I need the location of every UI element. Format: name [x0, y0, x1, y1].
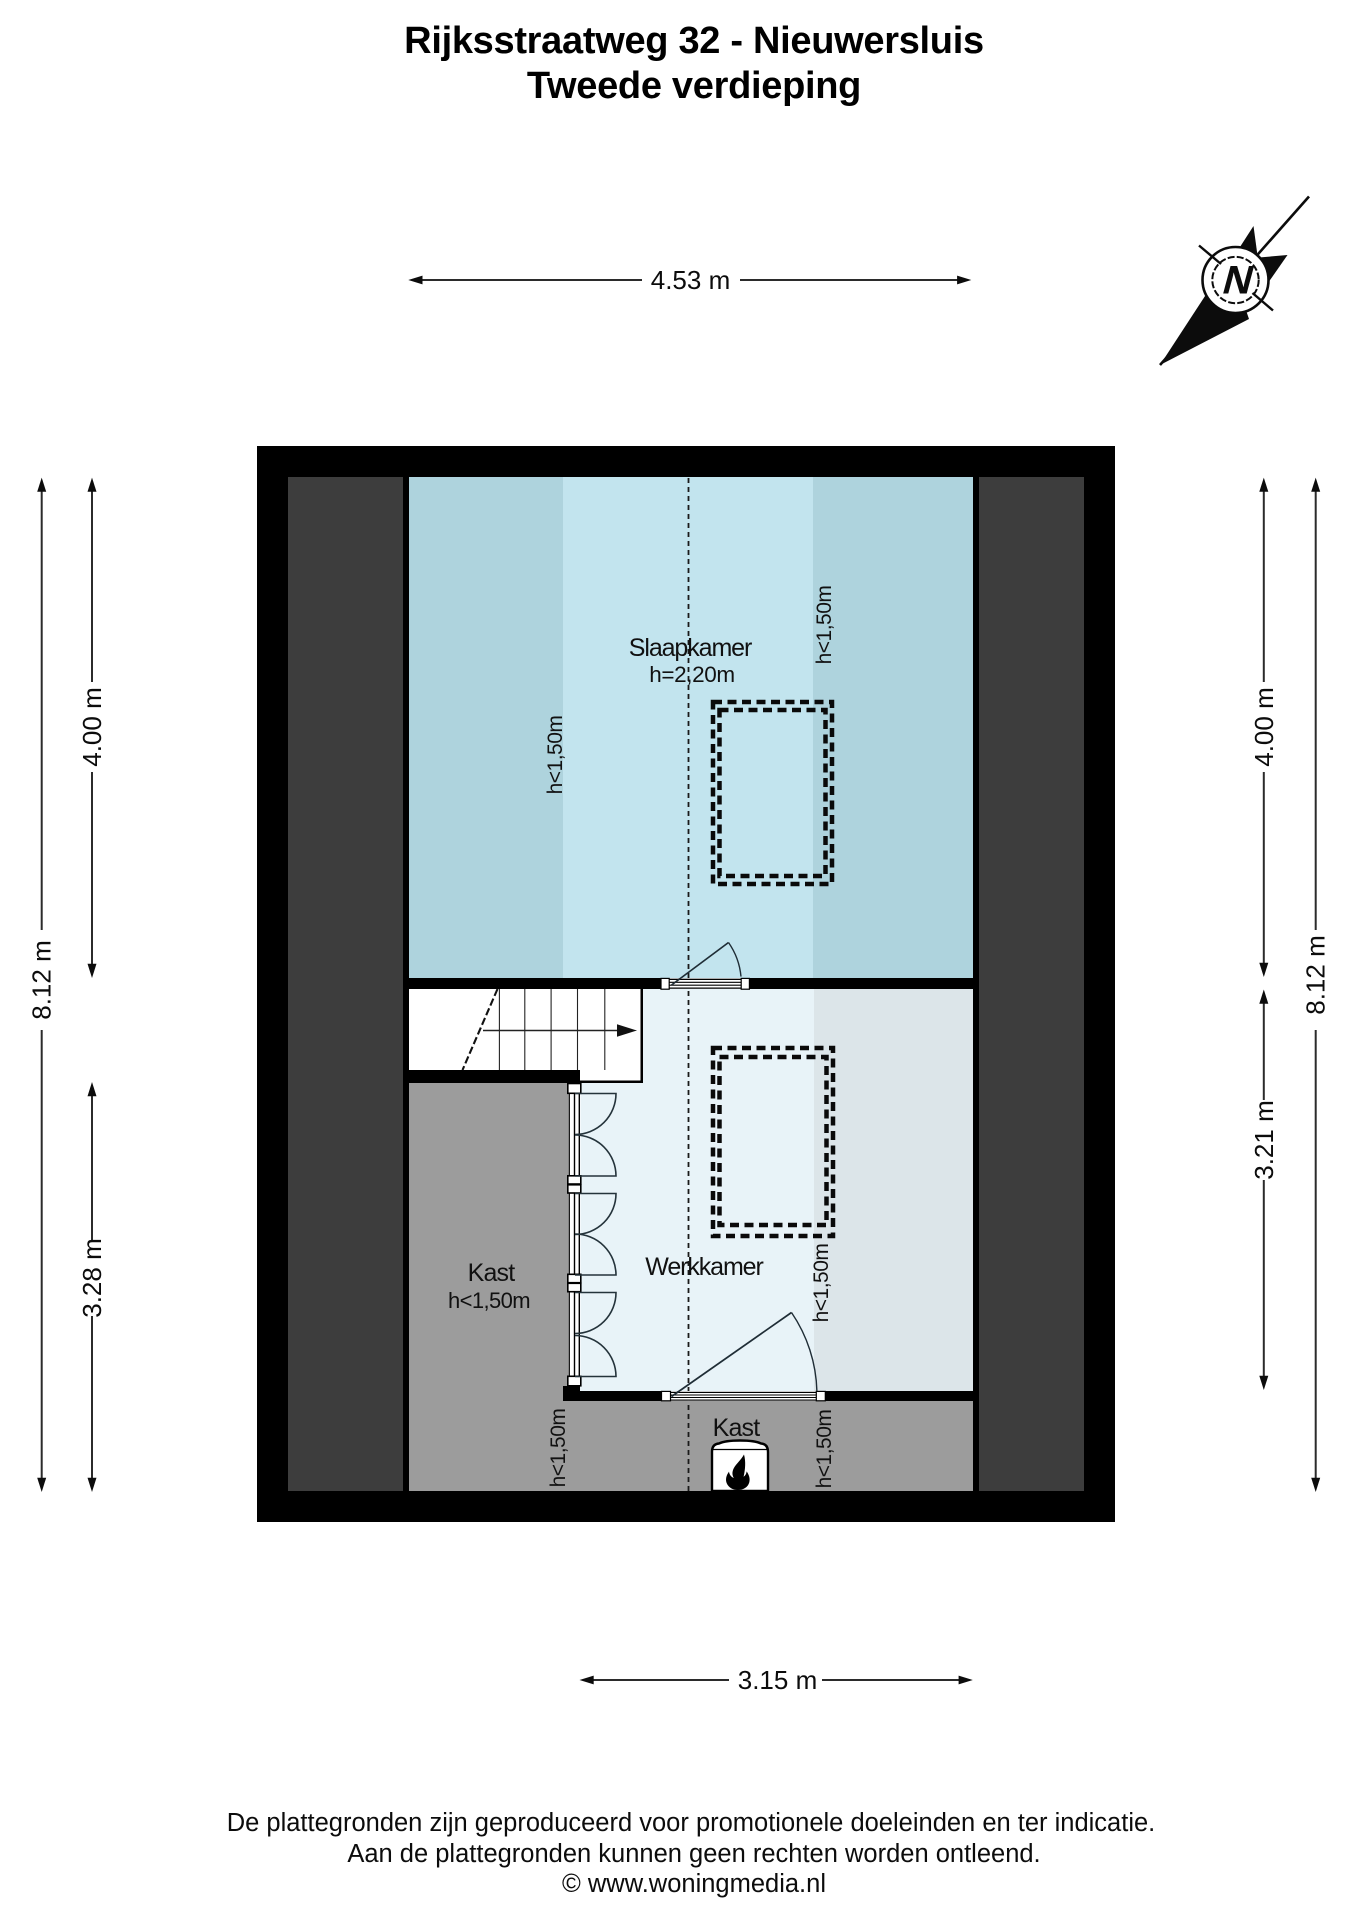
svg-text:Slaapkamer: Slaapkamer	[629, 634, 752, 662]
svg-text:h=2,20m: h=2,20m	[649, 662, 734, 687]
svg-text:Werkkamer: Werkkamer	[645, 1253, 763, 1281]
svg-text:4.53 m: 4.53 m	[651, 265, 731, 295]
svg-text:© www.woningmedia.nl: © www.woningmedia.nl	[562, 1870, 826, 1898]
svg-text:De plattegronden zijn geproduc: De plattegronden zijn geproduceerd voor …	[227, 1809, 1156, 1837]
svg-text:Kast: Kast	[713, 1414, 761, 1442]
svg-text:Rijksstraatweg 32 - Nieuwerslu: Rijksstraatweg 32 - Nieuwersluis	[404, 20, 984, 62]
svg-text:h<1,50m: h<1,50m	[544, 716, 567, 795]
svg-text:Aan de plattegronden kunnen ge: Aan de plattegronden kunnen geen rechten…	[347, 1840, 1040, 1868]
svg-text:Kast: Kast	[468, 1259, 516, 1287]
svg-text:4.00 m: 4.00 m	[77, 687, 107, 767]
svg-text:3.15 m: 3.15 m	[738, 1665, 818, 1695]
svg-text:Tweede verdieping: Tweede verdieping	[527, 65, 861, 107]
svg-text:3.28 m: 3.28 m	[77, 1238, 107, 1318]
svg-text:8.12 m: 8.12 m	[1301, 935, 1331, 1015]
svg-text:h<1,50m: h<1,50m	[813, 1410, 836, 1489]
svg-text:8.12 m: 8.12 m	[27, 940, 57, 1020]
svg-text:3.21 m: 3.21 m	[1249, 1100, 1279, 1180]
svg-text:h<1,50m: h<1,50m	[813, 586, 836, 665]
svg-text:h<1,50m: h<1,50m	[810, 1244, 833, 1323]
svg-text:4.00 m: 4.00 m	[1249, 687, 1279, 767]
svg-text:h<1,50m: h<1,50m	[448, 1288, 530, 1313]
svg-text:h<1,50m: h<1,50m	[547, 1409, 570, 1488]
